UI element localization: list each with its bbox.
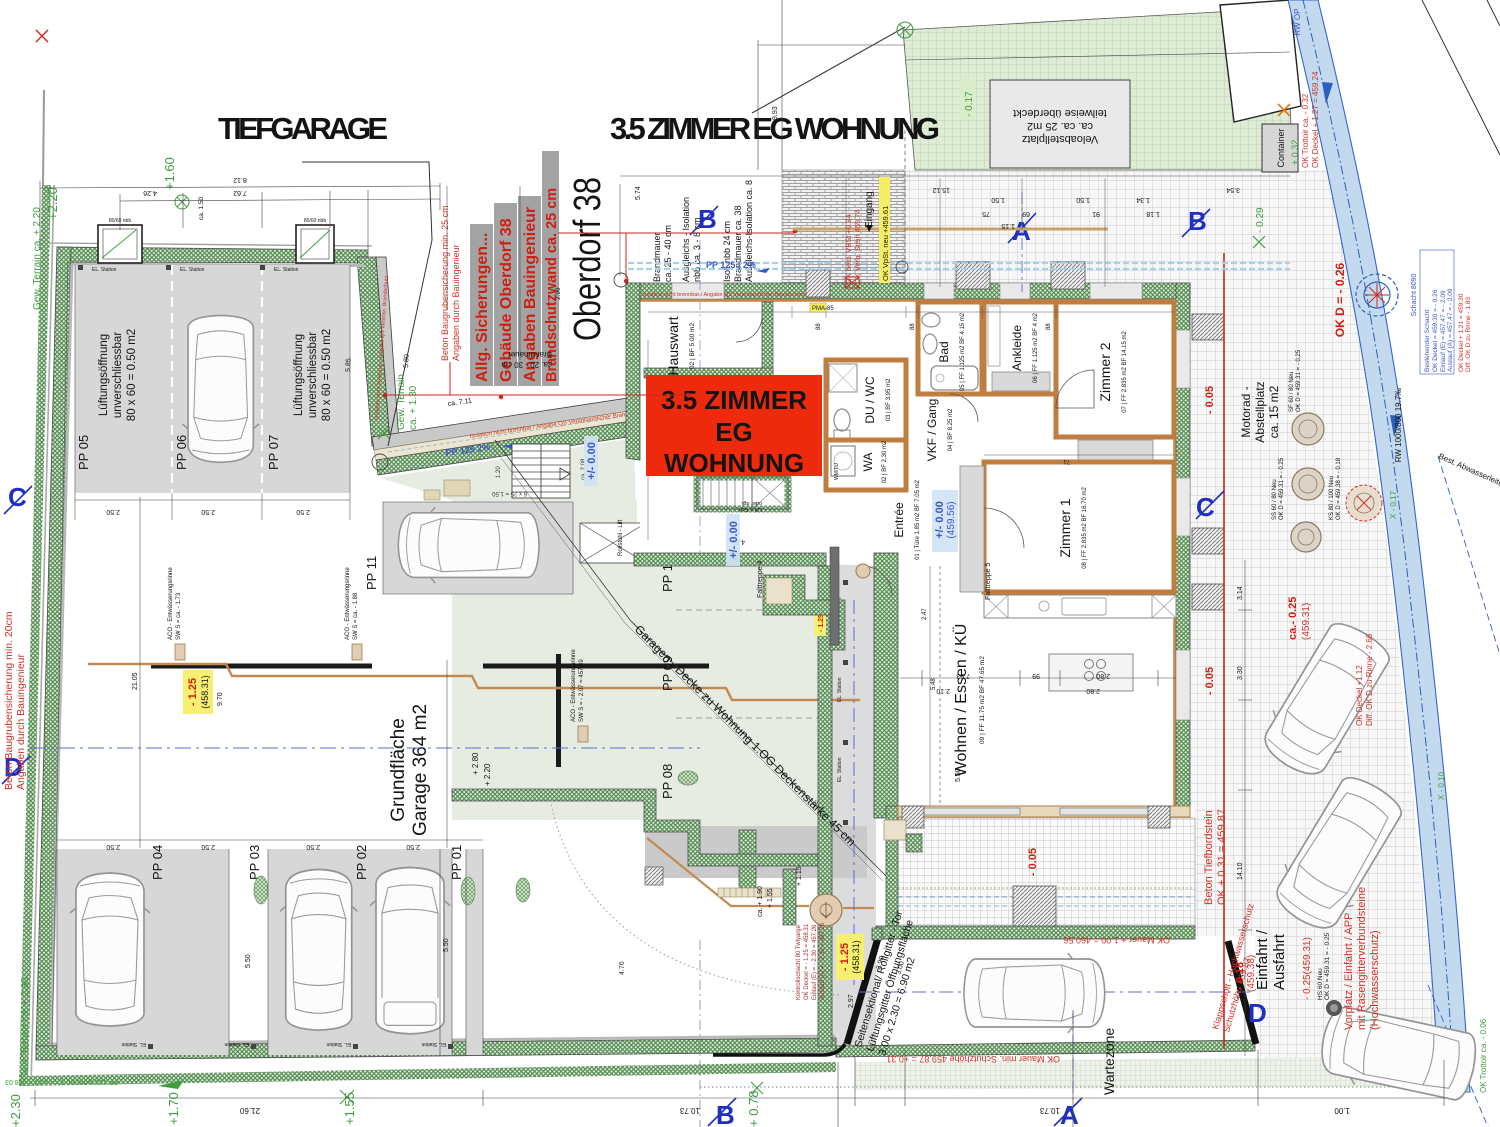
svg-text:2.50: 2.50 bbox=[406, 843, 420, 850]
svg-text:mit Rasengitterverbundsteine: mit Rasengitterverbundsteine bbox=[1356, 887, 1368, 1030]
svg-text:EL. Station: EL. Station bbox=[837, 757, 843, 782]
svg-text:SS 60 / 80 Neu: SS 60 / 80 Neu bbox=[1272, 479, 1278, 520]
svg-text:Isolation nicht brennbar / Ang: Isolation nicht brennbar / Angabe QS Ver… bbox=[642, 292, 805, 298]
svg-text:3.14: 3.14 bbox=[1237, 586, 1244, 600]
svg-text:SF 60 / 80 Neu: SF 60 / 80 Neu bbox=[1289, 372, 1295, 412]
svg-text:3.5 ZIMMER: 3.5 ZIMMER bbox=[661, 385, 807, 415]
svg-text:88: 88 bbox=[1046, 323, 1052, 330]
svg-text:ca. + 1.90: ca. + 1.90 bbox=[757, 886, 764, 917]
svg-text:EL. Station: EL. Station bbox=[224, 1041, 249, 1047]
svg-text:Brandmauer: Brandmauer bbox=[652, 232, 662, 282]
svg-text:03 | BF 3.95 m2: 03 | BF 3.95 m2 bbox=[886, 378, 892, 421]
svg-text:7.93: 7.93 bbox=[956, 672, 970, 679]
svg-text:EL. Station: EL. Station bbox=[92, 267, 117, 273]
svg-text:OK best. VBSt +0.34: OK best. VBSt +0.34 bbox=[844, 215, 853, 284]
svg-text:Diff. OK D zu Rinne - 1.83: Diff. OK D zu Rinne - 1.83 bbox=[1465, 297, 1472, 372]
svg-text:+1.70: +1.70 bbox=[166, 1092, 181, 1125]
svg-text:B: B bbox=[716, 1100, 735, 1127]
svg-text:PP 02: PP 02 bbox=[354, 845, 369, 880]
svg-text:ca. 15 m2: ca. 15 m2 bbox=[1267, 385, 1281, 438]
svg-text:Entrée: Entrée bbox=[892, 502, 906, 538]
svg-text:+/- 0.00: +/- 0.00 bbox=[586, 442, 598, 480]
svg-text:PP 05: PP 05 bbox=[76, 435, 91, 470]
svg-text:6 x 25 = 1.50: 6 x 25 = 1.50 bbox=[491, 490, 527, 496]
svg-text:Beton Baugrubensicherung min.: Beton Baugrubensicherung min. 20cm bbox=[3, 611, 15, 790]
svg-text:unverschliessbar: unverschliessbar bbox=[307, 332, 319, 418]
svg-text:04 | BF 8.25 m2: 04 | BF 8.25 m2 bbox=[948, 408, 954, 451]
svg-text:Brandmauer: Brandmauer bbox=[508, 350, 552, 359]
svg-text:Zimmer 2: Zimmer 2 bbox=[1097, 342, 1113, 401]
svg-text:oder dgl.: oder dgl. bbox=[740, 500, 762, 506]
svg-text:Beton Baugrubensicherung min.: Beton Baugrubensicherung min. 25 cm bbox=[440, 205, 450, 361]
svg-text:88: 88 bbox=[816, 323, 822, 330]
svg-text:+2.30: +2.30 bbox=[8, 1094, 23, 1127]
svg-text:SW S = - 2.07 = 457.49: SW S = - 2.07 = 457.49 bbox=[579, 659, 585, 722]
svg-text:Diff. OK D zu Rinne - 2.66: Diff. OK D zu Rinne - 2.66 bbox=[1365, 633, 1374, 726]
svg-text:Allg. Sicherungen...: Allg. Sicherungen... bbox=[474, 233, 491, 382]
svg-text:2.99: 2.99 bbox=[555, 287, 562, 300]
svg-text:HS 60 Neu: HS 60 Neu bbox=[1317, 968, 1324, 1000]
svg-text:06 | FF 1.125 m2 BF 4 m2: 06 | FF 1.125 m2 BF 4 m2 bbox=[1033, 312, 1039, 383]
svg-text:15.12: 15.12 bbox=[932, 186, 950, 193]
svg-text:3.54: 3.54 bbox=[1226, 186, 1240, 193]
svg-text:PP 11: PP 11 bbox=[364, 556, 379, 590]
svg-text:OK Mauer + 1.00 = 460.56: OK Mauer + 1.00 = 460.56 bbox=[1063, 935, 1170, 945]
svg-text:- 1.25: - 1.25 bbox=[839, 943, 851, 971]
svg-text:14.10: 14.10 bbox=[1237, 862, 1244, 880]
svg-text:- 1.25: - 1.25 bbox=[187, 678, 199, 706]
svg-text:02 | BF 5.00 m2: 02 | BF 5.00 m2 bbox=[689, 323, 696, 370]
svg-text:WM/TU: WM/TU bbox=[834, 463, 840, 480]
svg-text:Gew. Terrain: Gew. Terrain bbox=[396, 374, 407, 430]
svg-text:Abstellplatz: Abstellplatz bbox=[1253, 381, 1267, 442]
svg-text:ACO - Entwässerungsrinne: ACO - Entwässerungsrinne bbox=[345, 567, 351, 640]
svg-text:WOHNUNG: WOHNUNG bbox=[664, 448, 804, 478]
svg-text:Lüftungsöffnung: Lüftungsöffnung bbox=[293, 334, 305, 416]
svg-text:Angaben durch Bauingenieur: Angaben durch Bauingenieur bbox=[451, 244, 461, 361]
svg-text:OK Verb. Stein 459.74: OK Verb. Stein 459.74 bbox=[853, 209, 862, 284]
svg-text:EL. Station: EL. Station bbox=[421, 1041, 446, 1047]
svg-text:1.34: 1.34 bbox=[1136, 196, 1150, 203]
svg-text:10.73: 10.73 bbox=[679, 1106, 700, 1115]
svg-text:2.50: 2.50 bbox=[106, 843, 120, 850]
svg-text:Bad: Bad bbox=[937, 341, 951, 362]
svg-text:2.50: 2.50 bbox=[106, 508, 120, 515]
svg-text:OK Deckel + 1.21 = 459.30: OK Deckel + 1.21 = 459.30 bbox=[1458, 293, 1465, 372]
svg-text:Rollstuhl - Lift: Rollstuhl - Lift bbox=[618, 519, 624, 556]
svg-text:VKF / Gang: VKF / Gang bbox=[925, 399, 939, 462]
svg-text:Zimmer 1: Zimmer 1 bbox=[1057, 498, 1073, 557]
svg-text:Veloabstellplatzca. ca. 25 m2t: Veloabstellplatzca. ca. 25 m2teilweise ü… bbox=[1013, 107, 1107, 145]
svg-text:ACO - Entwässerungsrinne: ACO - Entwässerungsrinne bbox=[571, 649, 577, 722]
svg-text:9.93: 9.93 bbox=[772, 106, 779, 120]
svg-text:Brandmauer ca. 38: Brandmauer ca. 38 bbox=[733, 205, 743, 282]
svg-text:02 | BF 2.30 m2: 02 | BF 2.30 m2 bbox=[882, 440, 888, 483]
svg-text:2.80: 2.80 bbox=[1096, 672, 1110, 679]
svg-text:2.50: 2.50 bbox=[296, 508, 310, 515]
svg-text:01 | Türe 1.85 m2 BF 7.05 m2: 01 | Türe 1.85 m2 BF 7.05 m2 bbox=[915, 479, 921, 559]
svg-text:09 | FF 11.75 m2 BF 47.65 m2: 09 | FF 11.75 m2 BF 47.65 m2 bbox=[979, 656, 986, 744]
svg-text:80/60 nbb: 80/60 nbb bbox=[304, 218, 326, 224]
svg-text:Beton Tiefbordstein: Beton Tiefbordstein bbox=[1203, 810, 1215, 905]
svg-text:2.10: 2.10 bbox=[936, 687, 950, 694]
svg-text:Einlauf (E) = - 2.30 = 457.26: Einlauf (E) = - 2.30 = 457.26 bbox=[812, 924, 818, 1000]
svg-text:KS 80 / 100 Neu: KS 80 / 100 Neu bbox=[1329, 476, 1335, 520]
svg-text:- 1.25: - 1.25 bbox=[818, 614, 825, 632]
svg-text:Auslauf (A) = 457.47 = - 2.09: Auslauf (A) = 457.47 = - 2.09 bbox=[1447, 288, 1454, 372]
svg-text:7.62: 7.62 bbox=[233, 189, 247, 196]
svg-text:OK Trottoir ca. - 0.06: OK Trottoir ca. - 0.06 bbox=[1479, 1018, 1488, 1093]
svg-text:+ 1.15: + 1.15 bbox=[796, 866, 803, 886]
svg-text:- 0.17: - 0.17 bbox=[964, 91, 975, 117]
svg-text:ca. 25 - 40 cm: ca. 25 - 40 cm bbox=[663, 225, 673, 282]
svg-text:4.76: 4.76 bbox=[619, 961, 626, 975]
svg-text:08 | FF 2.835 m2 BF 16.70 m2: 08 | FF 2.835 m2 BF 16.70 m2 bbox=[1082, 487, 1088, 569]
svg-text:- 0.05: - 0.05 bbox=[1027, 848, 1039, 876]
svg-text:71: 71 bbox=[1063, 458, 1070, 464]
svg-text:- 0.25(459.31): - 0.25(459.31) bbox=[1302, 937, 1313, 1000]
svg-text:EL. Station: EL. Station bbox=[326, 1041, 351, 1047]
svg-text:Vorplatz / Einfahrt / APP: Vorplatz / Einfahrt / APP bbox=[1343, 913, 1355, 1030]
svg-text:99: 99 bbox=[1032, 672, 1040, 679]
svg-text:OK Deckel + 1.27 = 459.24: OK Deckel + 1.27 = 459.24 bbox=[1311, 71, 1320, 168]
svg-text:(458.31): (458.31) bbox=[851, 940, 861, 974]
svg-text:07 | FF 2.835 m2 BF 14.15 m2: 07 | FF 2.835 m2 BF 14.15 m2 bbox=[1122, 331, 1128, 413]
svg-text:RW 1000/800 19.7‰: RW 1000/800 19.7‰ bbox=[1394, 388, 1403, 463]
svg-text:10.73: 10.73 bbox=[1039, 1106, 1060, 1115]
svg-text:Gew. Terrain ca. + 2.30: Gew. Terrain ca. + 2.30 bbox=[20, 977, 31, 1080]
svg-text:PP 04: PP 04 bbox=[150, 845, 165, 880]
svg-text:OK D = 459.38 = - 0.18: OK D = 459.38 = - 0.18 bbox=[1336, 457, 1342, 520]
svg-text:TIEFGARAGE: TIEFGARAGE bbox=[218, 111, 388, 146]
svg-text:ca.- 0.25: ca.- 0.25 bbox=[1287, 597, 1299, 640]
svg-text:EL. Station: EL. Station bbox=[121, 1041, 146, 1047]
svg-text:+1.60: +1.60 bbox=[162, 157, 177, 190]
svg-text:4.26: 4.26 bbox=[143, 189, 157, 196]
svg-text:1.50: 1.50 bbox=[1076, 196, 1090, 203]
svg-text:5.85: 5.85 bbox=[345, 358, 353, 372]
svg-text:ca. 1.50: ca. 1.50 bbox=[198, 196, 205, 220]
svg-text:+ 2.80: + 2.80 bbox=[471, 752, 480, 775]
svg-text:- 0.05: - 0.05 bbox=[1204, 667, 1216, 695]
svg-text:RW OP: RW OP bbox=[1293, 9, 1302, 36]
svg-text:5.80: 5.80 bbox=[403, 354, 411, 368]
svg-text:1.00: 1.00 bbox=[1334, 1106, 1350, 1115]
svg-text:Motorad -: Motorad - bbox=[1239, 386, 1253, 437]
svg-text:ca. + 1.30: ca. + 1.30 bbox=[408, 385, 419, 430]
svg-text:Wohnen / Essen / KÜ: Wohnen / Essen / KÜ bbox=[952, 624, 970, 777]
svg-text:OK VpSt. neu +459.61: OK VpSt. neu +459.61 bbox=[881, 206, 890, 281]
svg-text:Bestehender Schacht: Bestehender Schacht bbox=[1424, 310, 1431, 372]
svg-text:OK Deckel = - 1.25 = 458.31: OK Deckel = - 1.25 = 458.31 bbox=[804, 923, 810, 1000]
svg-text:PP 07: PP 07 bbox=[266, 435, 281, 470]
svg-text:2.50: 2.50 bbox=[201, 508, 215, 515]
svg-text:5.48: 5.48 bbox=[931, 678, 937, 690]
svg-text:Grundfläche: Grundfläche bbox=[388, 718, 409, 822]
svg-text:OK Trottoir ca. - 0.32: OK Trottoir ca. - 0.32 bbox=[1301, 93, 1310, 168]
svg-text:PP 125 0.5% SL S = - 1.53 =: PP 125 0.5% SL S = - 1.53 = 458.03 bbox=[5, 1078, 118, 1085]
svg-text:Oberdorf 38: Oberdorf 38 bbox=[567, 177, 609, 341]
svg-text:+2.20: +2.20 bbox=[45, 187, 60, 220]
svg-text:2.50: 2.50 bbox=[201, 843, 215, 850]
svg-text:Schacht 8090: Schacht 8090 bbox=[1411, 273, 1418, 316]
svg-text:3.30: 3.30 bbox=[1237, 666, 1244, 680]
svg-text:PP 08: PP 08 bbox=[660, 764, 675, 799]
svg-text:Einlauf (E) = 457.47 = - 2.09: Einlauf (E) = 457.47 = - 2.09 bbox=[1440, 290, 1447, 372]
svg-text:5.50: 5.50 bbox=[245, 954, 252, 968]
svg-text:05 | FF 1.125 m2 BF 4.15 m2: 05 | FF 1.125 m2 BF 4.15 m2 bbox=[960, 312, 966, 391]
svg-text:2.47: 2.47 bbox=[922, 608, 928, 620]
svg-text:+1.55: +1.55 bbox=[342, 1092, 357, 1125]
svg-text:OK Deckel = 459.30 = - 0.26: OK Deckel = 459.30 = - 0.26 bbox=[1432, 289, 1439, 372]
svg-text:21.05: 21.05 bbox=[132, 672, 139, 690]
svg-text:(Hochwasserschutz): (Hochwasserschutz) bbox=[1369, 930, 1381, 1030]
svg-text:PMA-85: PMA-85 bbox=[812, 306, 834, 312]
svg-text:88: 88 bbox=[910, 323, 916, 330]
svg-text:(458.31): (458.31) bbox=[200, 675, 210, 709]
svg-text:Hauswart: Hauswart bbox=[665, 316, 681, 375]
svg-text:1.15: 1.15 bbox=[1001, 222, 1015, 229]
svg-text:Wartezone: Wartezone bbox=[1101, 1028, 1117, 1095]
svg-text:2.97: 2.97 bbox=[848, 994, 855, 1008]
svg-text:ca. 20 - 30 cm: ca. 20 - 30 cm bbox=[501, 360, 552, 369]
svg-text:+/- 0.00: +/- 0.00 bbox=[728, 521, 740, 559]
svg-text:PP 125 | 2%: PP 125 | 2% bbox=[706, 260, 756, 270]
svg-text:(459.31): (459.31) bbox=[1301, 603, 1312, 640]
svg-text:OK D = - 0.26: OK D = - 0.26 bbox=[1333, 263, 1347, 338]
svg-text:2.80: 2.80 bbox=[1086, 687, 1100, 694]
svg-text:EL. Station: EL. Station bbox=[274, 267, 299, 273]
svg-text:+ 0.32: + 0.32 bbox=[1290, 140, 1300, 165]
svg-text:DU / WC: DU / WC bbox=[863, 376, 877, 424]
svg-text:1.20: 1.20 bbox=[496, 466, 502, 478]
svg-text:Falttreppe 5: Falttreppe 5 bbox=[985, 563, 992, 600]
svg-text:1.18: 1.18 bbox=[1146, 210, 1160, 217]
svg-text:80 x 60 = 0.50 m2: 80 x 60 = 0.50 m2 bbox=[321, 329, 333, 421]
svg-text:Kontrollschacht 80 Twlyarge: Kontrollschacht 80 Twlyarge bbox=[796, 924, 802, 1000]
svg-text:Ausfahrt: Ausfahrt bbox=[1271, 933, 1288, 990]
svg-text:PP 03: PP 03 bbox=[247, 845, 262, 880]
svg-text:69: 69 bbox=[1022, 210, 1030, 217]
svg-text:+ 2.20: + 2.20 bbox=[483, 763, 492, 786]
svg-text:- 0.05: - 0.05 bbox=[1204, 386, 1216, 414]
svg-text:OK D = 459.31 = - 0.25: OK D = 459.31 = - 0.25 bbox=[1279, 457, 1285, 520]
svg-text:8.12: 8.12 bbox=[233, 176, 247, 183]
svg-text:5.50: 5.50 bbox=[443, 938, 450, 952]
svg-text:Gew. Terrain ca. + 2.20: Gew. Terrain ca. + 2.20 bbox=[32, 207, 43, 310]
svg-text:2.00: 2.00 bbox=[1237, 986, 1244, 1000]
svg-text:+ 0.78: + 0.78 bbox=[746, 1090, 761, 1127]
svg-text:Einfahrt /: Einfahrt / bbox=[1254, 929, 1271, 990]
svg-text:PP 01: PP 01 bbox=[449, 845, 464, 880]
svg-text:EG: EG bbox=[715, 417, 753, 447]
svg-text:OK + 0.31 = 459.87: OK + 0.31 = 459.87 bbox=[1216, 809, 1228, 905]
svg-text:5.50: 5.50 bbox=[955, 768, 962, 782]
svg-text:80 x 60 = 0.50 m2: 80 x 60 = 0.50 m2 bbox=[126, 329, 138, 421]
svg-text:Auslauf (A) = - 2.30 = 457.26: Auslauf (A) = - 2.30 = 457.26 bbox=[820, 922, 826, 1000]
svg-text:+ 1.55: + 1.55 bbox=[767, 888, 774, 908]
svg-text:Garage 364 m2: Garage 364 m2 bbox=[410, 704, 431, 836]
svg-text:PP 06: PP 06 bbox=[174, 435, 189, 470]
svg-text:- 0.29: - 0.29 bbox=[1255, 207, 1266, 233]
svg-text:nbb ca. 3 - 8 cm: nbb ca. 3 - 8 cm bbox=[692, 217, 702, 282]
svg-text:Container: Container bbox=[1276, 128, 1286, 167]
svg-text:21.60: 21.60 bbox=[239, 1106, 260, 1115]
svg-text:Eingang: Eingang bbox=[864, 191, 875, 228]
svg-text:WA: WA bbox=[861, 453, 875, 472]
svg-text:- 0.18: - 0.18 bbox=[1234, 962, 1246, 990]
svg-text:D: D bbox=[1248, 998, 1267, 1028]
svg-text:75: 75 bbox=[982, 210, 990, 217]
svg-text:+/- 0.00: +/- 0.00 bbox=[934, 501, 946, 539]
svg-text:OK Deckel +1.12: OK Deckel +1.12 bbox=[1355, 665, 1364, 726]
svg-text:X - 0.17: X - 0.17 bbox=[1389, 490, 1398, 519]
svg-text:EL. Station: EL. Station bbox=[837, 677, 843, 702]
svg-text:5.74: 5.74 bbox=[635, 186, 642, 200]
svg-text:ACO - Entwässerungsrinne: ACO - Entwässerungsrinne bbox=[168, 567, 174, 640]
svg-text:SW S = ca. - 1.88: SW S = ca. - 1.88 bbox=[353, 592, 359, 640]
svg-text:Ankleide: Ankleide bbox=[1010, 325, 1024, 371]
svg-text:OK D = 459.31 = - 0.25: OK D = 459.31 = - 0.25 bbox=[1296, 349, 1302, 412]
svg-text:OK D = 459.31 = - 0.25: OK D = 459.31 = - 0.25 bbox=[1324, 932, 1331, 1000]
svg-text:(459.56): (459.56) bbox=[946, 501, 957, 538]
svg-text:91: 91 bbox=[1092, 210, 1100, 217]
svg-text:1.50: 1.50 bbox=[991, 196, 1005, 203]
svg-text:EL. Station: EL. Station bbox=[180, 267, 205, 273]
svg-text:Angaben durch Bauingenieur: Angaben durch Bauingenieur bbox=[15, 653, 27, 790]
svg-text:unverschliessbar: unverschliessbar bbox=[112, 332, 124, 418]
svg-text:Lüftungsöffnung: Lüftungsöffnung bbox=[98, 334, 110, 416]
svg-text:Isol. nbb 24 cm: Isol. nbb 24 cm bbox=[722, 221, 732, 282]
svg-text:2.50: 2.50 bbox=[306, 843, 320, 850]
svg-text:SW S = ca. - 1.73: SW S = ca. - 1.73 bbox=[176, 592, 182, 640]
svg-text:OK Mauer min. Schutzhöhe 459.8: OK Mauer min. Schutzhöhe 459.87 = +0.31 bbox=[886, 1054, 1060, 1064]
svg-text:X - 0.10: X - 0.10 bbox=[1437, 771, 1446, 800]
svg-text:9.70: 9.70 bbox=[217, 692, 224, 706]
svg-text:C: C bbox=[1196, 492, 1215, 522]
